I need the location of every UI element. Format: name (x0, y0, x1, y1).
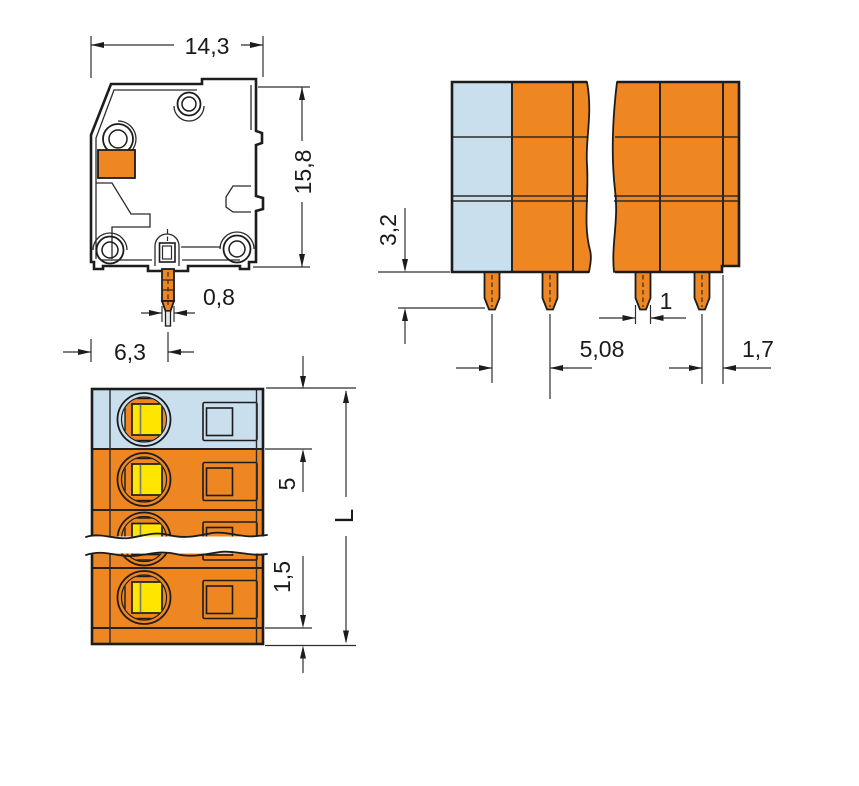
hole-top-inner (182, 97, 196, 111)
dim-label-side-pin-offset: 6,3 (114, 339, 146, 365)
dim-front-end-offset: 1,7 (669, 275, 774, 384)
inner-right-notch (226, 186, 251, 212)
screw-slot (132, 404, 162, 435)
solder-pin-side (162, 269, 174, 326)
top-view: 5 1,5 L (84, 356, 359, 673)
front-view: 3,2 5,08 1 1,7 (375, 82, 774, 399)
dim-label-top-end-wall: 1,5 (269, 561, 295, 593)
dim-label-front-pin-length: 3,2 (375, 214, 401, 246)
hole-bottom-right-outer (224, 236, 251, 263)
dim-label-front-pitch: 5,08 (580, 336, 625, 362)
dim-top-total-length: L (329, 390, 359, 644)
front-right-body (613, 82, 739, 272)
dim-front-pitch: 5,08 (456, 314, 624, 399)
technical-drawing: 14,3 15,8 0,8 6,3 (0, 0, 859, 786)
side-view: 14,3 15,8 0,8 6,3 (63, 33, 316, 365)
hole-left-inner (109, 130, 127, 148)
dim-side-pin-width: 0,8 (141, 284, 235, 322)
dim-label-top-pitch: 5 (274, 478, 300, 491)
dim-top-pitch: 5 (265, 356, 356, 492)
side-latch-block (98, 150, 135, 178)
drawing-canvas: 14,3 15,8 0,8 6,3 (0, 0, 859, 786)
dim-label-side-pin-width: 0,8 (203, 284, 235, 310)
solder-pin-front-1 (485, 272, 500, 310)
dim-side-width: 14,3 (91, 33, 263, 78)
hole-top-outer (178, 93, 201, 116)
break-band (84, 537, 272, 554)
dim-side-height: 15,8 (253, 87, 316, 267)
hole-bottom-left-inner (102, 242, 118, 258)
dim-side-pin-offset: 6,3 (63, 332, 194, 365)
dim-label-front-end-offset: 1,7 (742, 336, 774, 362)
solder-pin-front-2 (543, 272, 558, 310)
hole-bottom-right-inner (229, 241, 245, 257)
solder-pin-front-4 (695, 272, 710, 310)
dim-label-side-width: 14,3 (185, 33, 230, 59)
dim-top-end-wall: 1,5 (265, 556, 356, 673)
dim-label-side-height: 15,8 (290, 150, 316, 195)
solder-pin-front-3 (636, 272, 651, 310)
front-first-pole-blue (452, 82, 512, 272)
dim-label-front-pin-width: 1 (660, 288, 673, 314)
dim-label-top-total-length: L (329, 509, 359, 523)
